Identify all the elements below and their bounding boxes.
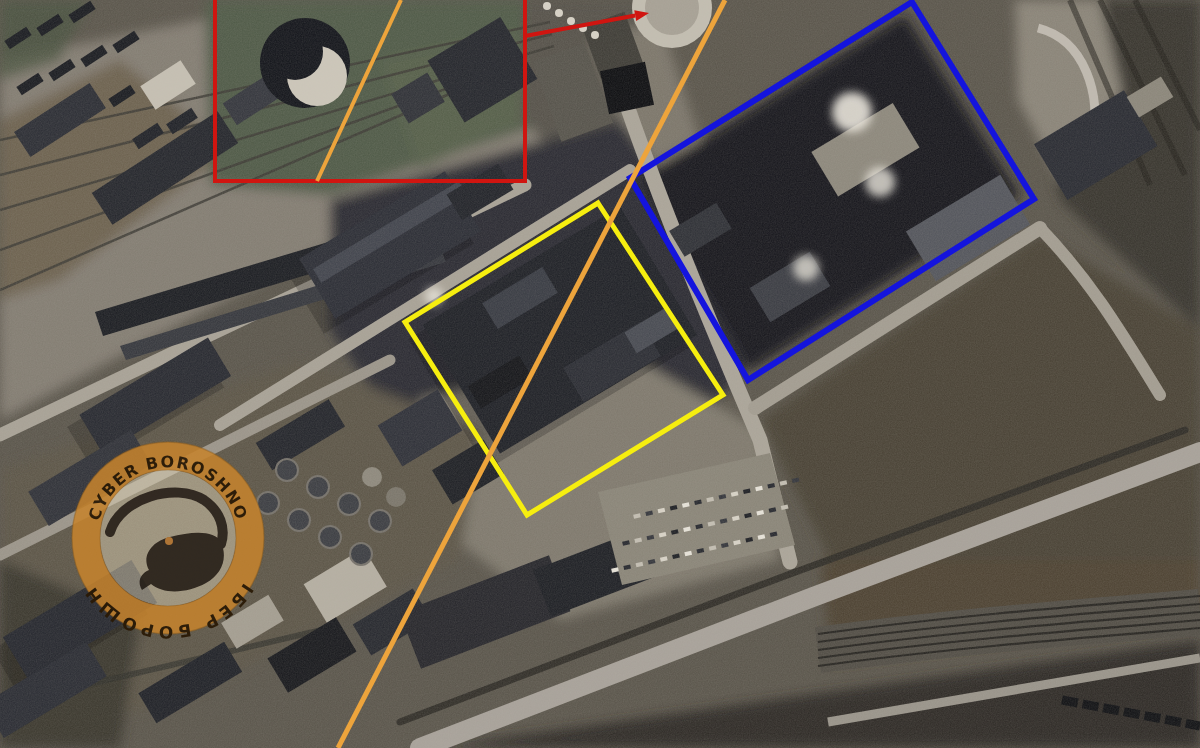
mole-nose-dot [165, 537, 173, 545]
watermark-layer: · CYBER BOROSHNO · КІБЕР БОРОШНО [0, 0, 1200, 748]
watermark-text-top: · CYBER BOROSHNO · [0, 0, 253, 529]
satellite-image: · CYBER BOROSHNO · КІБЕР БОРОШНО [0, 0, 1200, 748]
svg-text:· CYBER BOROSHNO ·: · CYBER BOROSHNO · [0, 0, 253, 529]
watermark-logo: · CYBER BOROSHNO · КІБЕР БОРОШНО [0, 0, 264, 642]
